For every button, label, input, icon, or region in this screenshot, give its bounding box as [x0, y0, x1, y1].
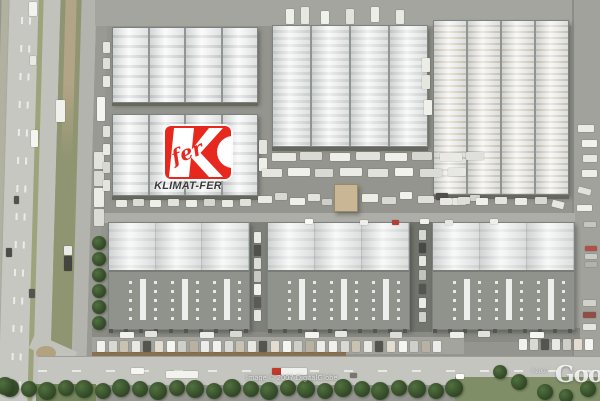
tree: [149, 382, 167, 400]
tree: [371, 382, 389, 400]
tree: [95, 383, 111, 399]
tree: [92, 236, 106, 250]
tree: [559, 389, 573, 401]
tree: [223, 379, 241, 397]
klimat-fer-logo: fer: [162, 123, 234, 182]
copyright-badge: ©2007: [531, 369, 549, 375]
satellite-map-canvas[interactable]: fer KLIMAT-FER Image © 2007 DigitalGlobe…: [0, 0, 600, 401]
tree: [38, 382, 56, 400]
tree: [428, 383, 444, 399]
tree: [75, 380, 93, 398]
tree: [511, 374, 527, 390]
tree: [391, 380, 407, 396]
tree: [206, 383, 222, 399]
tree: [186, 380, 204, 398]
klimat-fer-label: KLIMAT-FER: [136, 180, 240, 192]
tree: [58, 380, 74, 396]
tree: [169, 380, 185, 396]
tree: [92, 252, 106, 266]
tree: [21, 381, 37, 397]
tree: [297, 380, 315, 398]
tree: [354, 381, 370, 397]
tree: [92, 300, 106, 314]
tree: [408, 380, 426, 398]
tree: [132, 381, 148, 397]
tree: [260, 382, 278, 400]
tree: [317, 383, 333, 399]
tree: [92, 284, 106, 298]
tree: [243, 381, 259, 397]
tree: [445, 379, 463, 397]
google-watermark: Google: [555, 361, 600, 388]
tree: [112, 379, 130, 397]
tree: [537, 384, 553, 400]
tree: [493, 365, 507, 379]
tree: [92, 316, 106, 330]
tree-row: [0, 0, 600, 401]
tree: [92, 268, 106, 282]
imagery-credit: Image © 2007 DigitalGlobe: [246, 375, 338, 382]
